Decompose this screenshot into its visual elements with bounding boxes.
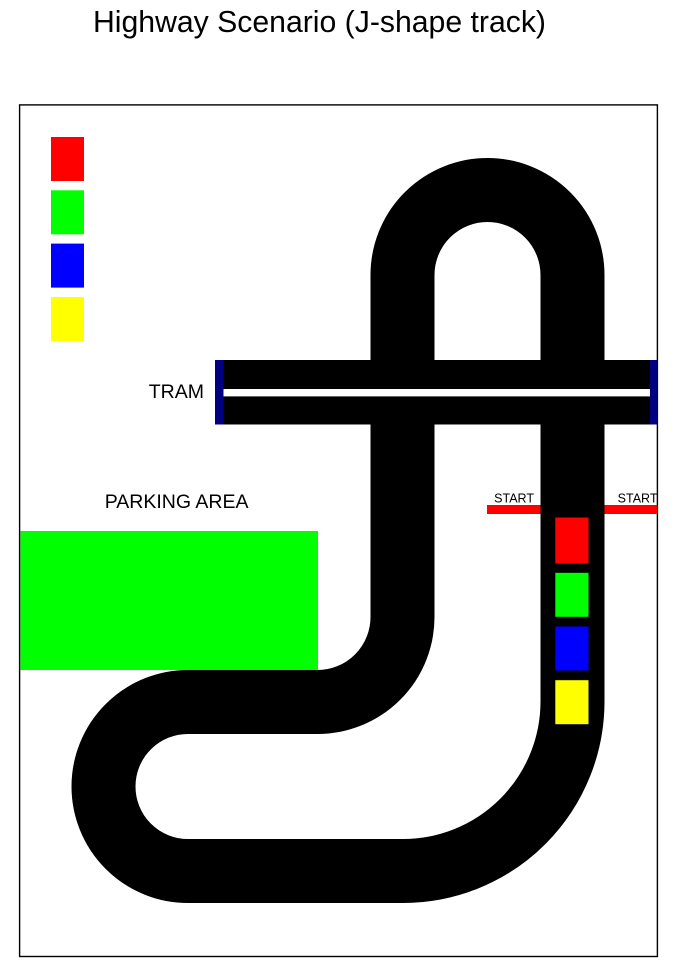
- svg-text:START: START: [494, 492, 534, 506]
- svg-text:PARKING AREA: PARKING AREA: [105, 491, 249, 513]
- svg-text:TRAM: TRAM: [149, 381, 204, 403]
- svg-text:Highway Scenario (J-shape trac: Highway Scenario (J-shape track): [93, 6, 546, 39]
- svg-text:START: START: [618, 492, 658, 506]
